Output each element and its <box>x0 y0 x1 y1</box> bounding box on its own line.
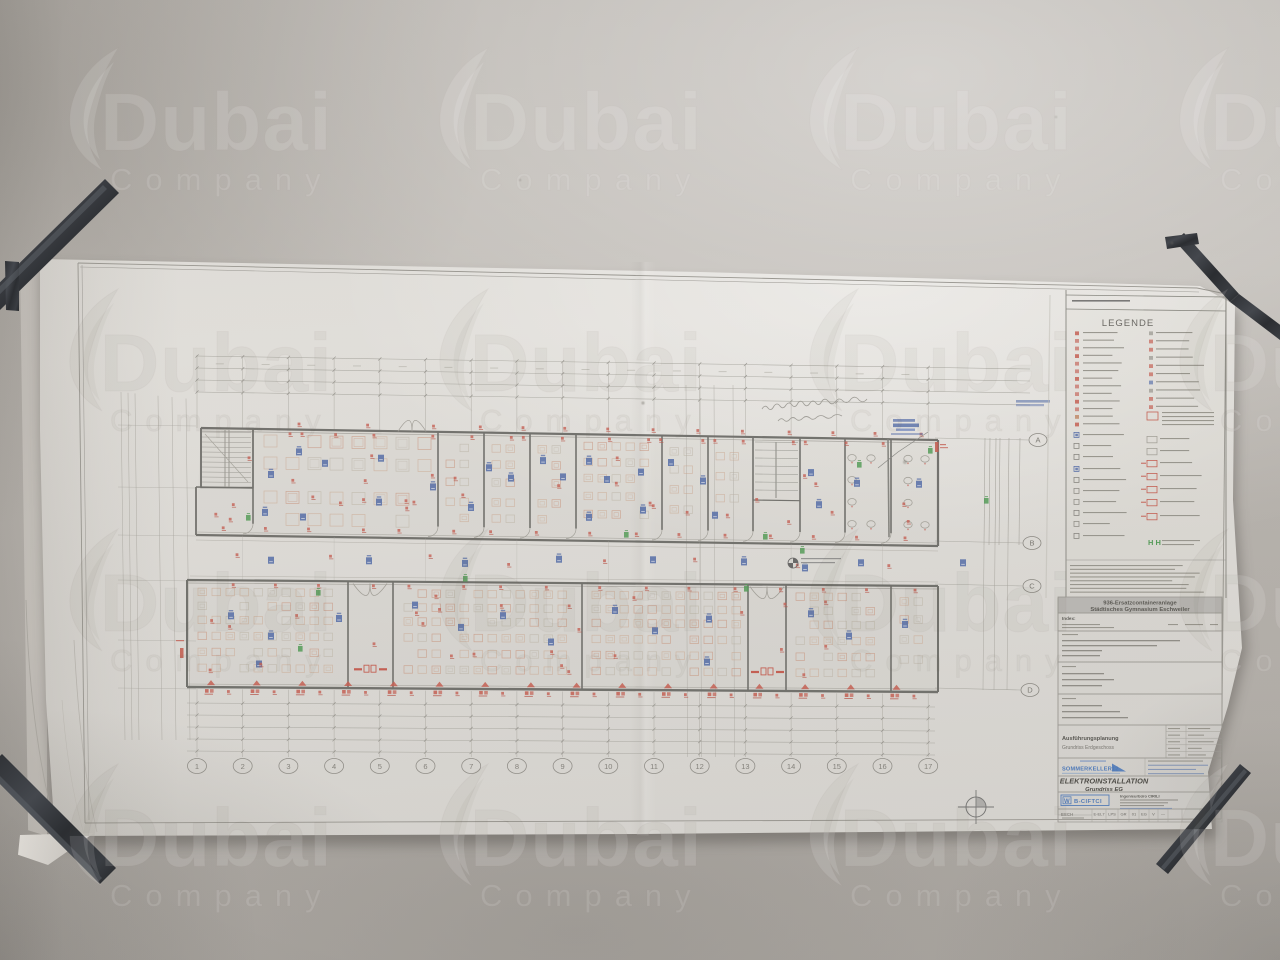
svg-text:Company: Company <box>850 878 1074 913</box>
svg-text:Company: Company <box>480 403 704 438</box>
svg-text:Company: Company <box>1220 878 1280 913</box>
svg-text:Company: Company <box>850 403 1074 438</box>
svg-text:Dubai: Dubai <box>100 558 333 649</box>
svg-text:Company: Company <box>110 878 334 913</box>
svg-text:Dubai: Dubai <box>470 558 703 649</box>
svg-text:Company: Company <box>850 643 1074 678</box>
svg-text:Company: Company <box>850 162 1074 197</box>
svg-text:Dubai: Dubai <box>840 558 1073 649</box>
svg-text:Dubai: Dubai <box>840 77 1073 168</box>
svg-text:Company: Company <box>480 878 704 913</box>
svg-text:Dubai: Dubai <box>1210 77 1280 168</box>
svg-text:Company: Company <box>480 643 704 678</box>
svg-text:Company: Company <box>110 403 334 438</box>
svg-text:Company: Company <box>480 162 704 197</box>
svg-text:Company: Company <box>110 162 334 197</box>
svg-text:Company: Company <box>1220 162 1280 197</box>
svg-text:Dubai: Dubai <box>100 318 333 409</box>
svg-text:Dubai: Dubai <box>840 318 1073 409</box>
svg-text:Dubai: Dubai <box>100 77 333 168</box>
svg-text:Dubai: Dubai <box>470 77 703 168</box>
svg-text:Dubai: Dubai <box>1210 793 1280 884</box>
svg-text:Dubai: Dubai <box>470 318 703 409</box>
svg-text:Company: Company <box>110 643 334 678</box>
